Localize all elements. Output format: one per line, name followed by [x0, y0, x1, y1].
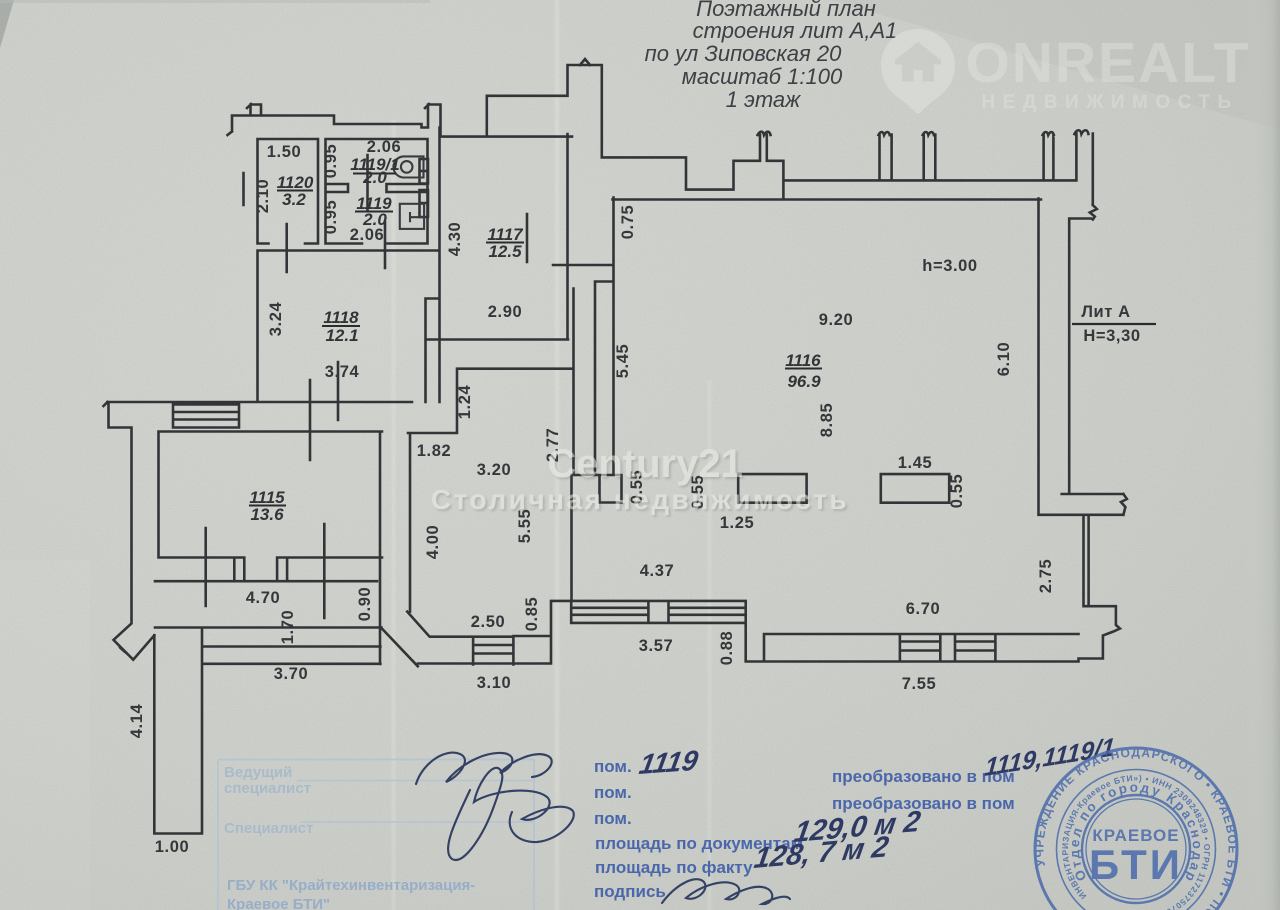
svg-text:0.90: 0.90: [356, 587, 374, 622]
svg-text:подпись: подпись: [594, 882, 666, 901]
svg-text:2.90: 2.90: [488, 303, 523, 321]
svg-text:1.82: 1.82: [417, 442, 452, 460]
svg-text:3.10: 3.10: [477, 674, 512, 692]
svg-text:6.70: 6.70: [906, 600, 941, 618]
svg-text:НЕДВИЖИМОСТЬ: НЕДВИЖИМОСТЬ: [981, 92, 1238, 113]
svg-text:2.0: 2.0: [362, 168, 387, 187]
svg-text:h=3.00: h=3.00: [922, 257, 977, 275]
svg-text:специалист: специалист: [224, 780, 311, 797]
svg-text:0.55: 0.55: [948, 474, 966, 509]
svg-text:Н=3,30: Н=3,30: [1083, 327, 1140, 345]
svg-text:2.06: 2.06: [350, 226, 385, 244]
svg-text:96.9: 96.9: [787, 372, 821, 391]
svg-text:4.70: 4.70: [246, 589, 281, 607]
svg-text:ONREALT: ONREALT: [965, 31, 1250, 95]
svg-text:9.20: 9.20: [819, 311, 854, 329]
svg-text:4.30: 4.30: [446, 222, 464, 257]
svg-text:3.24: 3.24: [267, 302, 285, 337]
svg-text:Столичная недвижимость: Столичная недвижимость: [431, 484, 849, 515]
svg-text:1.00: 1.00: [155, 838, 190, 856]
svg-text:5.45: 5.45: [614, 344, 632, 379]
svg-text:Специалист: Специалист: [224, 820, 313, 837]
svg-text:1.24: 1.24: [456, 385, 474, 420]
svg-text:0.85: 0.85: [523, 597, 541, 632]
svg-text:Краевое БТИ": Краевое БТИ": [227, 896, 330, 910]
svg-text:1118: 1118: [323, 308, 359, 327]
svg-text:3.57: 3.57: [639, 637, 674, 655]
svg-text:1.70: 1.70: [279, 610, 297, 645]
svg-text:0.95: 0.95: [322, 144, 340, 179]
svg-text:4.14: 4.14: [128, 704, 146, 739]
svg-text:2.10: 2.10: [254, 179, 272, 214]
svg-text:пом.: пом.: [594, 783, 632, 802]
svg-text:3.2: 3.2: [282, 190, 306, 209]
svg-text:ГБУ КК "Крайтехинвентаризация-: ГБУ КК "Крайтехинвентаризация-: [227, 877, 475, 894]
svg-text:1116: 1116: [785, 351, 821, 370]
svg-text:1 этаж: 1 этаж: [726, 87, 801, 112]
svg-text:3.20: 3.20: [477, 461, 512, 479]
svg-text:2.75: 2.75: [1037, 559, 1055, 594]
svg-text:7.55: 7.55: [902, 675, 937, 693]
svg-text:0.75: 0.75: [619, 205, 637, 240]
svg-text:1.45: 1.45: [898, 454, 933, 472]
svg-text:пом.: пом.: [594, 757, 632, 776]
svg-text:Century21: Century21: [547, 442, 743, 486]
svg-text:12.1: 12.1: [325, 326, 358, 345]
svg-text:6.10: 6.10: [995, 342, 1013, 377]
svg-text:3.74: 3.74: [325, 363, 360, 381]
svg-text:2.50: 2.50: [471, 613, 506, 631]
svg-text:3.70: 3.70: [274, 665, 309, 683]
svg-text:12.5: 12.5: [488, 242, 522, 261]
svg-text:площадь по факту: площадь по факту: [595, 858, 753, 877]
svg-text:строения лит А,А1: строения лит А,А1: [693, 18, 898, 43]
svg-text:13.6: 13.6: [250, 505, 284, 524]
svg-text:пом.: пом.: [594, 809, 632, 828]
svg-text:4.00: 4.00: [424, 525, 442, 560]
svg-text:2.06: 2.06: [367, 138, 402, 156]
svg-text:БТИ: БТИ: [1089, 841, 1183, 888]
svg-text:0.95: 0.95: [322, 200, 340, 235]
svg-text:1.50: 1.50: [267, 143, 302, 161]
svg-text:4.37: 4.37: [640, 562, 675, 580]
svg-text:1119: 1119: [637, 745, 701, 781]
svg-text:по ул Зиповская 20: по ул Зиповская 20: [645, 41, 843, 66]
svg-text:Ведущий: Ведущий: [224, 764, 292, 781]
svg-text:8.85: 8.85: [818, 403, 836, 438]
svg-text:масштаб 1:100: масштаб 1:100: [682, 64, 843, 89]
svg-text:1.25: 1.25: [720, 514, 755, 532]
svg-text:Лит А: Лит А: [1081, 303, 1130, 321]
svg-text:0.88: 0.88: [718, 631, 736, 666]
